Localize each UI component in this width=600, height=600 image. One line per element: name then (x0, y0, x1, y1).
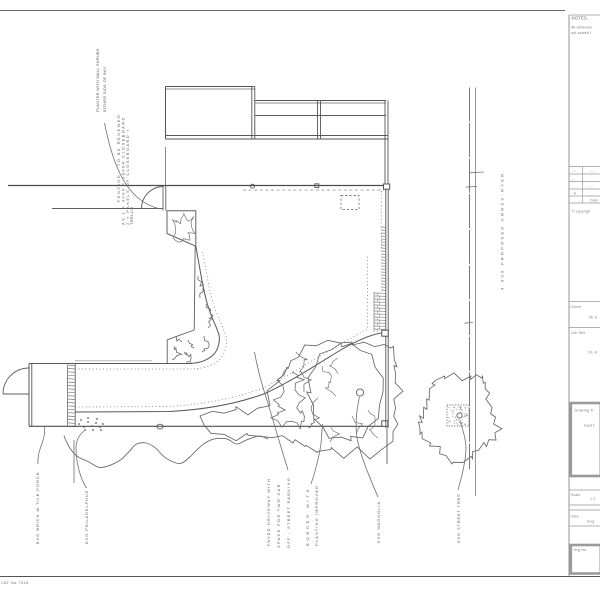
svg-text:PART: PART (584, 423, 595, 428)
svg-text:BORDER WITH: BORDER WITH (305, 487, 310, 546)
svg-text:4·900 PROPOSED CROSS-OVER: 4·900 PROPOSED CROSS-OVER (500, 172, 505, 290)
svg-text:EXG STREET TREE: EXG STREET TREE (456, 493, 461, 543)
svg-text:EXG MAGNOLIA: EXG MAGNOLIA (376, 501, 381, 543)
svg-text:EXG PHILADELPHUS: EXG PHILADELPHUS (84, 490, 89, 544)
svg-text:CAT. No. 7318.: CAT. No. 7318. (1, 580, 29, 585)
svg-text:PLANTER WITH WALL SHRUBS: PLANTER WITH WALL SHRUBS (95, 48, 100, 112)
svg-text:—: — (572, 169, 576, 173)
svg-text:NOTES:: NOTES: (572, 16, 589, 21)
svg-text:Job Title: Job Title (571, 331, 586, 335)
svg-text:EXG BRICK W.TILE PORCH: EXG BRICK W.TILE PORCH (35, 472, 40, 544)
svg-text:Date: Date (571, 515, 579, 519)
svg-text:not scaled f: not scaled f (571, 31, 591, 35)
svg-text:Mr &: Mr & (589, 315, 598, 320)
svg-text:All dimensio: All dimensio (571, 26, 592, 30)
svg-text:EITHER SIDE OF BAY: EITHER SIDE OF BAY (102, 66, 107, 112)
svg-text:Aug: Aug (587, 519, 594, 524)
svg-text:PLANTING IMPROVED: PLANTING IMPROVED (314, 485, 319, 546)
svg-text:Client: Client (571, 305, 582, 309)
svg-text:PAVED DRIVEWAY WITH: PAVED DRIVEWAY WITH (266, 478, 271, 546)
svg-text:Drawing Ti: Drawing Ti (575, 409, 594, 413)
svg-text:SPACE FOR TWO CAR: SPACE FOR TWO CAR (276, 483, 281, 548)
svg-text:24, A: 24, A (588, 350, 598, 355)
svg-text:Drg No.: Drg No. (574, 548, 588, 552)
svg-text:1:1: 1:1 (590, 497, 596, 501)
svg-text:© copyrigh: © copyrigh (572, 210, 591, 214)
svg-text:Date: Date (590, 199, 598, 203)
svg-text:OFF - STREET PARKING: OFF - STREET PARKING (286, 477, 291, 548)
svg-text:TRELLIS: TRELLIS (129, 206, 134, 225)
svg-text:Scale: Scale (571, 493, 581, 497)
svg-text:—: — (590, 169, 594, 173)
